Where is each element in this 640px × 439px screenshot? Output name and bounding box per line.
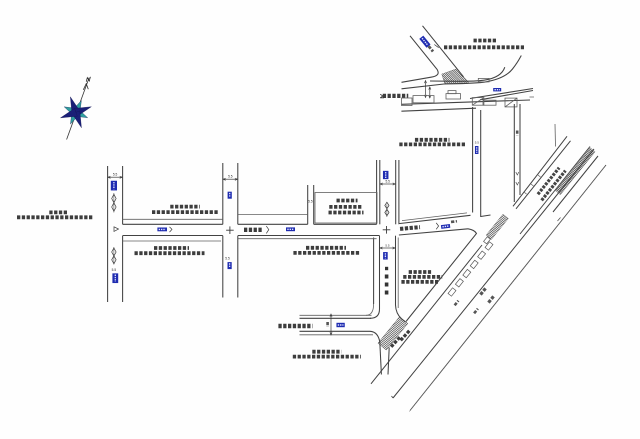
svg-text:5.5: 5.5 [112, 268, 117, 272]
svg-text:5.5: 5.5 [308, 200, 313, 204]
svg-text:5.5: 5.5 [385, 243, 390, 247]
svg-text:5.5: 5.5 [113, 172, 118, 176]
svg-text:5.5: 5.5 [225, 257, 230, 261]
svg-text:5.5: 5.5 [385, 179, 390, 183]
svg-text:5.5: 5.5 [228, 174, 233, 178]
svg-text:5.5: 5.5 [475, 141, 480, 145]
